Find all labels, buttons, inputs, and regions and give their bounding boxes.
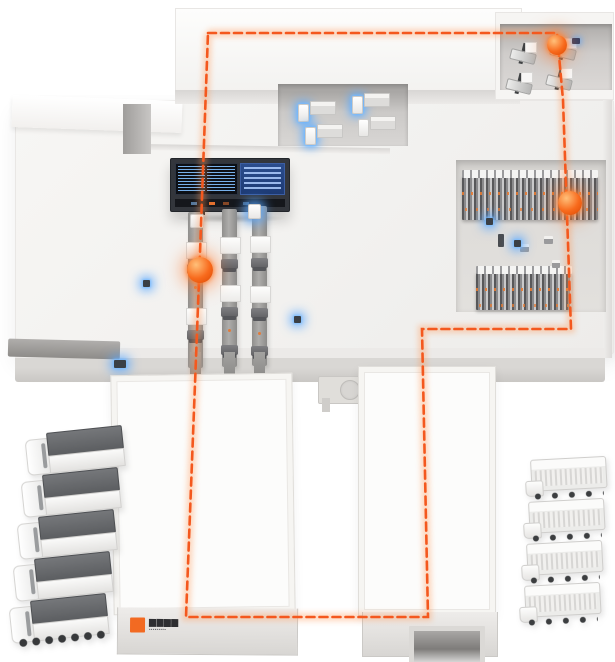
rack-zone-box	[544, 236, 553, 244]
left-platform-edge	[8, 339, 120, 360]
box-truck	[520, 540, 604, 584]
conveyor-line	[222, 209, 237, 367]
vent-unit-foot	[322, 398, 330, 412]
rack-row	[476, 272, 572, 310]
warehouse-illustration: ▆▆▆▆ ▪▪▪▪▪▪▪▪▪	[0, 0, 615, 662]
box-truck	[524, 456, 608, 500]
workstation-unit	[298, 104, 309, 122]
floor-box	[190, 214, 204, 228]
company-logo: ▆▆▆▆ ▪▪▪▪▪▪▪▪▪	[130, 617, 179, 632]
south-east-warehouse-roof	[358, 366, 496, 616]
conveyor-marker	[187, 257, 213, 283]
south-west-warehouse-front: ▆▆▆▆ ▪▪▪▪▪▪▪▪▪	[117, 607, 298, 655]
rack-zone-box	[520, 244, 529, 252]
iot-sensor-glow	[143, 280, 150, 287]
iot-kiosk-glow	[248, 204, 261, 219]
box-truck	[522, 498, 606, 542]
workstation-unit	[358, 119, 369, 137]
rack-zone-box	[552, 260, 560, 268]
workstation	[310, 101, 336, 115]
conveyor-roller	[251, 258, 268, 268]
workstation	[317, 124, 343, 138]
wall-passage	[123, 104, 151, 154]
conveyor-parcel	[220, 285, 241, 302]
logo-badge-icon	[130, 617, 145, 632]
cargo-cube	[525, 42, 537, 53]
racking-marker	[558, 191, 582, 215]
conveyor-line	[188, 212, 203, 368]
conveyor-roller	[251, 308, 268, 318]
logo-line1: ▆▆▆▆	[149, 618, 179, 627]
dock-vehicle	[508, 42, 538, 68]
workstation	[364, 93, 390, 107]
iot-sensor-glow	[514, 240, 521, 247]
dashboard-display	[175, 163, 285, 195]
dashboard-chart-panel	[240, 163, 285, 195]
conveyor-speck	[228, 329, 231, 332]
south-east-warehouse-front	[362, 612, 498, 657]
workstation-unit	[352, 96, 363, 114]
logo-text: ▆▆▆▆ ▪▪▪▪▪▪▪▪▪	[149, 618, 179, 632]
north-wing-roof	[175, 8, 522, 94]
conveyor-roller	[221, 307, 238, 317]
conveyor-parcel	[186, 308, 207, 325]
workstation-unit	[305, 127, 316, 145]
dashboard-data-panel	[175, 163, 238, 195]
conveyor-line	[252, 206, 267, 366]
left-wall	[11, 95, 182, 133]
dock-door	[409, 626, 485, 662]
control-dashboard-screen	[170, 158, 290, 212]
conveyor-speck	[258, 332, 261, 335]
box-truck	[518, 582, 602, 626]
conveyor-speck	[194, 286, 197, 289]
conveyor-roller	[221, 259, 238, 269]
conveyor-parcel	[220, 237, 241, 254]
conveyor-parcel	[250, 286, 271, 303]
logo-line2: ▪▪▪▪▪▪▪▪▪	[149, 628, 179, 632]
cargo-cube	[521, 72, 533, 83]
workstation	[370, 116, 396, 130]
dashboard-status-strip	[175, 199, 285, 207]
iot-sensor-glow	[486, 218, 493, 225]
sensor-chip	[572, 38, 580, 44]
conveyor-parcel	[250, 236, 271, 253]
rack-zone-equipment	[498, 234, 504, 247]
south-west-warehouse-roof	[110, 373, 295, 616]
conveyor-roller	[187, 330, 204, 340]
dock-vehicle	[504, 72, 534, 98]
semi-truck	[8, 593, 110, 645]
data-column	[178, 166, 205, 192]
northeast-dock-marker	[547, 35, 567, 55]
iot-sensor-glow	[294, 316, 301, 323]
cargo-cube	[561, 68, 573, 79]
data-column	[207, 166, 234, 192]
iot-sensor-glow	[114, 360, 126, 368]
truck-wheels	[528, 616, 598, 627]
dock-vehicle	[544, 68, 574, 94]
